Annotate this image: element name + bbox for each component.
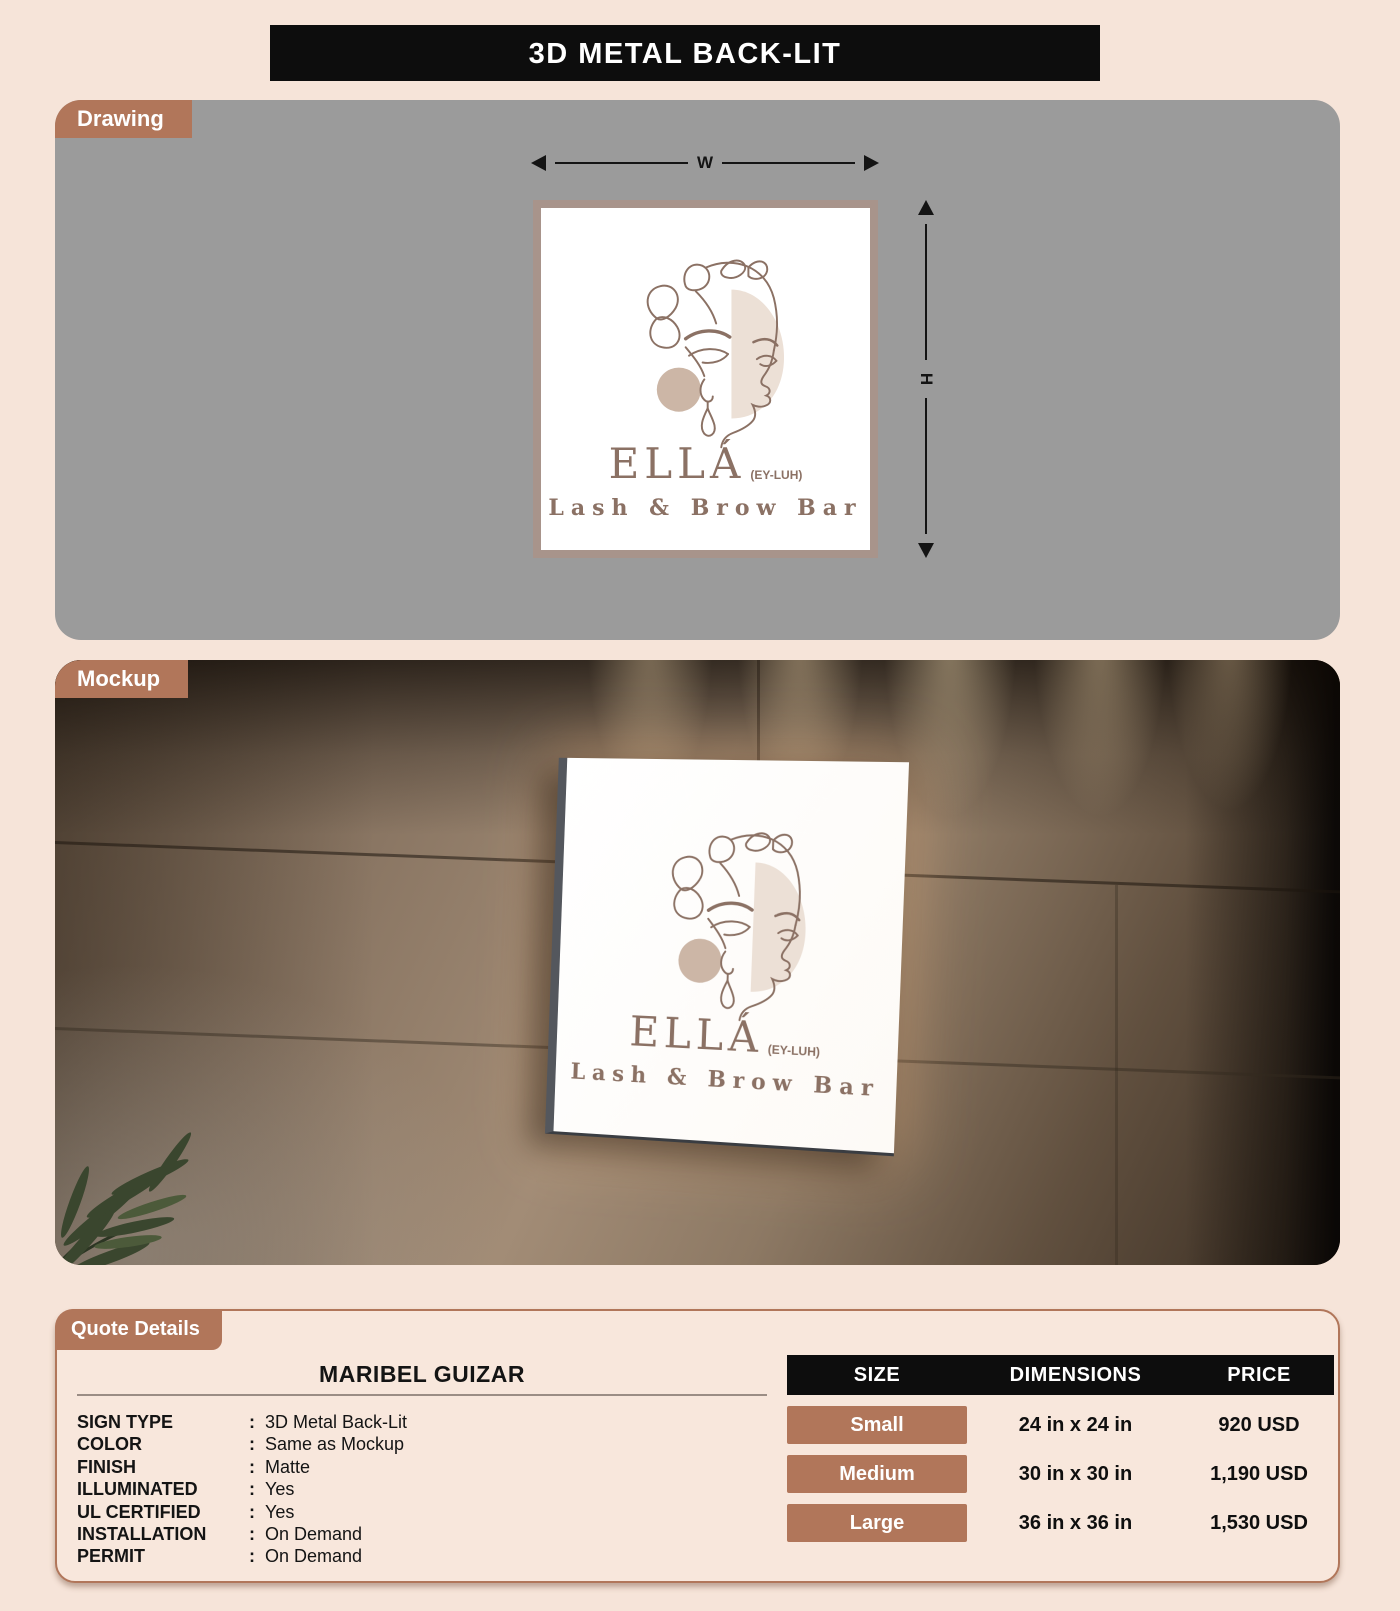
wall-seam — [1115, 885, 1118, 1265]
spec-value: On Demand — [265, 1523, 362, 1545]
spec-colon: : — [249, 1545, 265, 1567]
header-dimensions: DIMENSIONS — [967, 1355, 1184, 1395]
spec-row: ILLUMINATED : Yes — [77, 1478, 407, 1500]
spec-colon: : — [249, 1523, 265, 1545]
price-value: 920 USD — [1184, 1414, 1334, 1437]
arrow-line — [925, 398, 928, 534]
brand-pronunciation: (EY-LUH) — [768, 1042, 821, 1059]
spec-label: SIGN TYPE — [77, 1411, 249, 1433]
spec-label: FINISH — [77, 1456, 249, 1478]
spec-colon: : — [249, 1411, 265, 1433]
spec-row: COLOR : Same as Mockup — [77, 1433, 407, 1455]
sign-mockup: ELLÁ (EY-LUH) Lash & Brow Bar — [545, 758, 909, 1157]
brand-pronunciation: (EY-LUH) — [750, 468, 802, 482]
spec-list: SIGN TYPE : 3D Metal Back-Lit COLOR : Sa… — [77, 1411, 407, 1568]
logo: ELLÁ (EY-LUH) Lash & Brow Bar — [555, 806, 907, 1103]
dimensions-value: 24 in x 24 in — [967, 1414, 1184, 1437]
brand-row: ELLÁ (EY-LUH) — [541, 443, 870, 485]
divider — [77, 1394, 767, 1396]
customer-name: MARIBEL GUIZAR — [77, 1361, 767, 1388]
sign-drawing: ELLÁ (EY-LUH) Lash & Brow Bar — [533, 200, 878, 558]
spec-row: PERMIT : On Demand — [77, 1545, 407, 1567]
drawing-panel: Drawing W H — [55, 100, 1340, 640]
spec-value: 3D Metal Back-Lit — [265, 1411, 407, 1433]
page-title: 3D METAL BACK-LIT — [270, 25, 1100, 81]
quote-sheet-page: 3D METAL BACK-LIT Drawing W H — [0, 0, 1400, 1611]
arrow-line — [722, 162, 855, 165]
dimensions-value: 30 in x 30 in — [967, 1463, 1184, 1486]
face-line-art-icon — [621, 807, 838, 1026]
price-value: 1,190 USD — [1184, 1463, 1334, 1486]
spec-label: INSTALLATION — [77, 1523, 249, 1545]
arrow-left-icon — [531, 155, 546, 171]
quote-details-panel: Quote Details MARIBEL GUIZAR SIGN TYPE :… — [55, 1309, 1340, 1583]
arrow-line — [925, 224, 928, 360]
brand-name: ELLÁ — [629, 1011, 764, 1060]
spec-row: FINISH : Matte — [77, 1456, 407, 1478]
spec-colon: : — [249, 1501, 265, 1523]
spec-colon: : — [249, 1478, 265, 1500]
table-row: Large 36 in x 36 in 1,530 USD — [787, 1504, 1334, 1542]
spec-row: UL CERTIFIED : Yes — [77, 1501, 407, 1523]
size-large-button[interactable]: Large — [787, 1504, 967, 1542]
spec-label: COLOR — [77, 1433, 249, 1455]
tab-quote-details: Quote Details — [55, 1309, 222, 1350]
mockup-wall-photo: ELLÁ (EY-LUH) Lash & Brow Bar — [55, 660, 1340, 1265]
spec-value: Matte — [265, 1456, 310, 1478]
spec-label: UL CERTIFIED — [77, 1501, 249, 1523]
size-small-button[interactable]: Small — [787, 1406, 967, 1444]
spec-colon: : — [249, 1433, 265, 1455]
price-table: SIZE DIMENSIONS PRICE Small 24 in x 24 i… — [787, 1355, 1334, 1542]
header-size: SIZE — [787, 1355, 967, 1395]
table-row: Medium 30 in x 30 in 1,190 USD — [787, 1455, 1334, 1493]
tab-drawing: Drawing — [55, 100, 192, 138]
spec-row: SIGN TYPE : 3D Metal Back-Lit — [77, 1411, 407, 1433]
spec-value: Yes — [265, 1478, 294, 1500]
spec-colon: : — [249, 1456, 265, 1478]
price-value: 1,530 USD — [1184, 1512, 1334, 1535]
spec-label: PERMIT — [77, 1545, 249, 1567]
arrow-right-icon — [864, 155, 879, 171]
spec-label: ILLUMINATED — [77, 1478, 249, 1500]
spec-value: Yes — [265, 1501, 294, 1523]
arrow-down-icon — [918, 543, 934, 558]
logo: ELLÁ (EY-LUH) Lash & Brow Bar — [541, 237, 870, 521]
header-price: PRICE — [1184, 1355, 1334, 1395]
arrow-line — [555, 162, 688, 165]
tab-mockup: Mockup — [55, 660, 188, 698]
brand-name: ELLÁ — [609, 443, 746, 485]
spec-value: On Demand — [265, 1545, 362, 1567]
mockup-panel: ELLÁ (EY-LUH) Lash & Brow Bar — [55, 660, 1340, 1265]
price-table-header: SIZE DIMENSIONS PRICE — [787, 1355, 1334, 1395]
width-label: W — [697, 153, 713, 173]
face-line-art-icon — [600, 237, 812, 449]
brand-tagline: Lash & Brow Bar — [555, 1058, 897, 1103]
height-dimension-arrow: H — [915, 200, 937, 558]
dimensions-value: 36 in x 36 in — [967, 1512, 1184, 1535]
brand-row: ELLÁ (EY-LUH) — [557, 1007, 899, 1066]
spec-row: INSTALLATION : On Demand — [77, 1523, 407, 1545]
arrow-up-icon — [918, 200, 934, 215]
spec-value: Same as Mockup — [265, 1433, 404, 1455]
brand-tagline: Lash & Brow Bar — [541, 495, 870, 521]
width-dimension-arrow: W — [531, 152, 879, 174]
table-row: Small 24 in x 24 in 920 USD — [787, 1406, 1334, 1444]
plant-leaves-icon — [55, 1067, 330, 1265]
size-medium-button[interactable]: Medium — [787, 1455, 967, 1493]
height-label: H — [916, 373, 936, 385]
